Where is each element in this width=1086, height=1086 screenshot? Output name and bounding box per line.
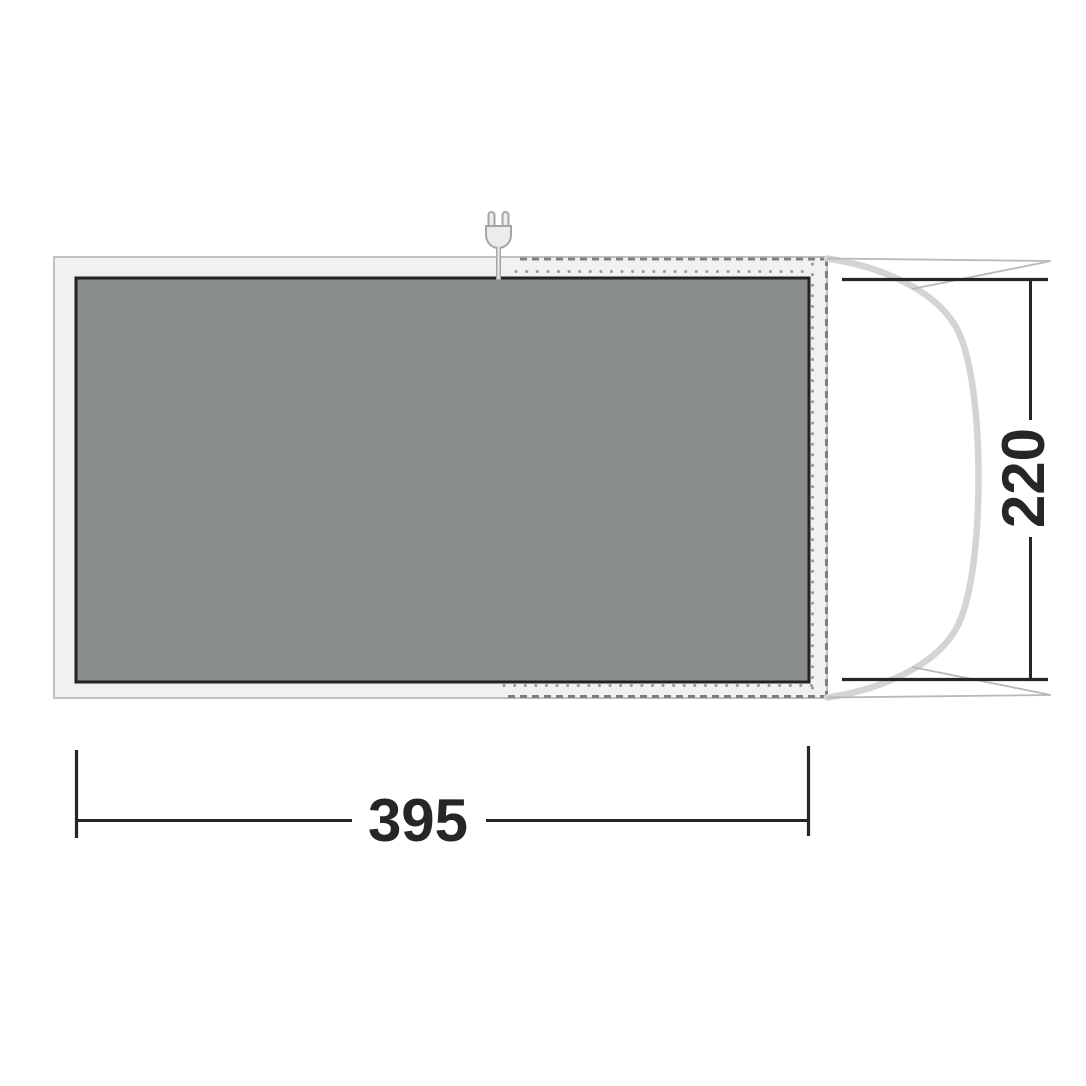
tent-footprint-diagram: 395 220 bbox=[0, 0, 1086, 1086]
height-dimension-label: 220 bbox=[990, 428, 1057, 528]
plug-body bbox=[486, 226, 511, 248]
height-dimension: 220 bbox=[842, 280, 1057, 680]
tent-pole-curve bbox=[827, 259, 979, 698]
floor-panel bbox=[76, 278, 809, 682]
width-dimension-label: 395 bbox=[368, 787, 468, 854]
floorplan-svg: 395 220 bbox=[0, 0, 1086, 1086]
width-dimension: 395 bbox=[77, 746, 809, 854]
